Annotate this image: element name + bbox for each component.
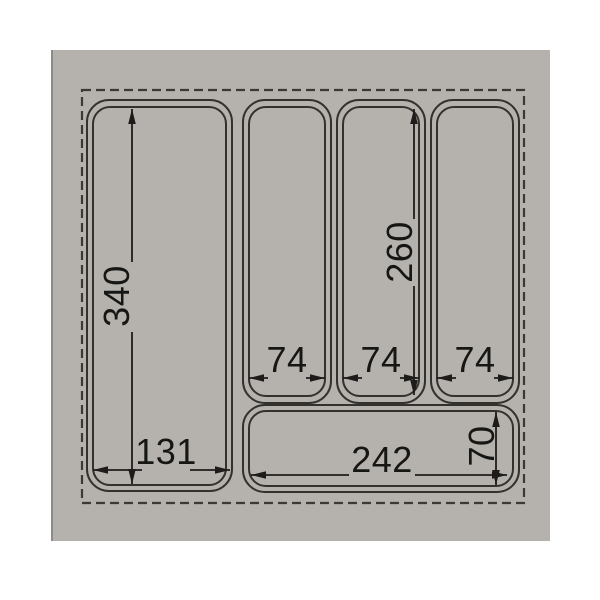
screenshot-root: 340 131 74 74 74 260 — [0, 0, 600, 600]
tray-technical-drawing: 340 131 74 74 74 260 — [0, 0, 600, 600]
dim-131-label: 131 — [135, 431, 197, 472]
dim-74c-label: 74 — [454, 339, 495, 380]
dim-74a-label: 74 — [266, 339, 307, 380]
dim-74b-label: 74 — [360, 339, 401, 380]
dim-340-label: 340 — [96, 265, 137, 327]
dim-242-label: 242 — [351, 439, 413, 480]
dim-70-label: 70 — [461, 425, 502, 466]
dim-260-label: 260 — [379, 221, 420, 283]
